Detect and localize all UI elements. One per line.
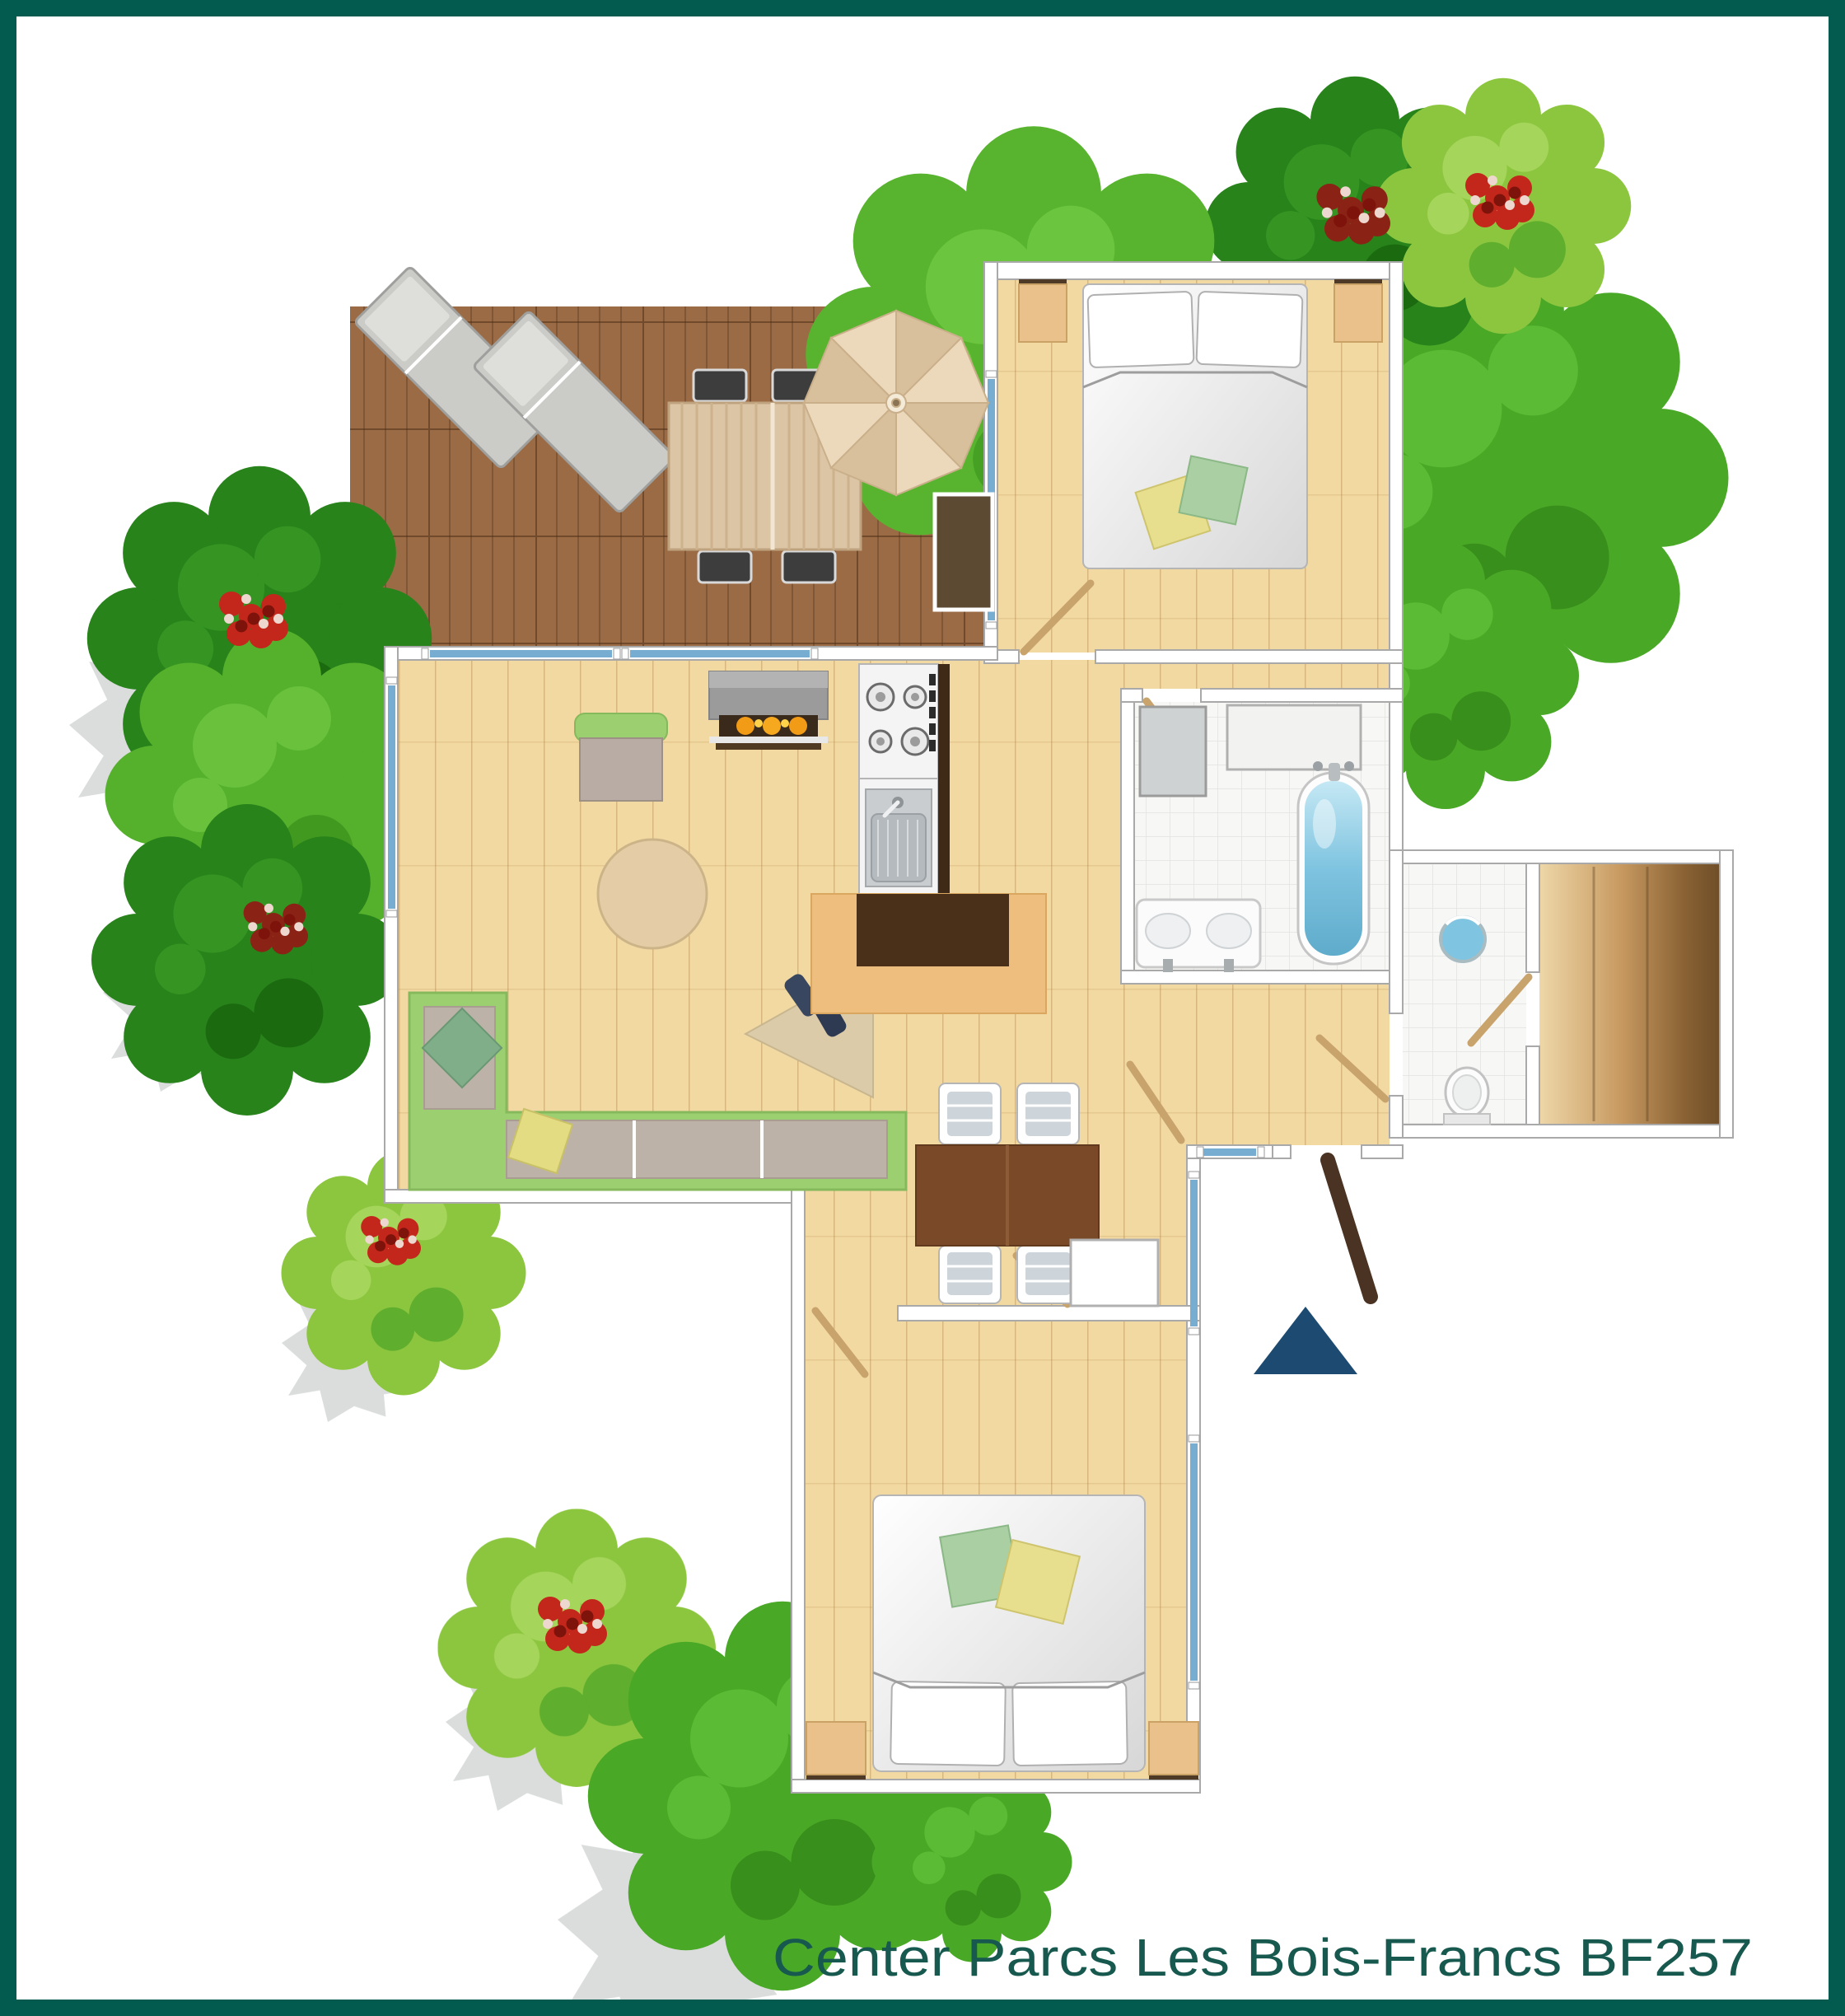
nightstand	[1334, 284, 1382, 342]
kitchen-counter	[811, 894, 1046, 1013]
armchair	[575, 713, 667, 801]
bed-cushion-green	[1179, 456, 1247, 524]
closet	[1071, 1240, 1158, 1306]
double-bed	[1083, 284, 1307, 568]
wardrobe	[1227, 705, 1361, 769]
double-bed-2	[873, 1495, 1145, 1771]
nightstand	[1149, 1722, 1198, 1775]
double-washbasin	[1137, 900, 1260, 972]
washing-machine	[1140, 707, 1206, 796]
floor-plan-poster: Center Parcs Les Bois-Francs BF257	[0, 0, 1845, 2016]
deck-storage-box	[935, 494, 993, 610]
caption: Center Parcs Les Bois-Francs BF257	[773, 1928, 1753, 1987]
nightstand	[806, 1722, 866, 1775]
nightstand	[1019, 284, 1067, 342]
toilet	[1444, 1068, 1490, 1125]
floor-plan-canvas: Center Parcs Les Bois-Francs BF257	[0, 0, 1845, 2016]
sauna-floor	[1539, 863, 1720, 1125]
parasol	[804, 311, 988, 495]
bathtub	[1298, 761, 1369, 964]
tree-left-lower	[91, 804, 403, 1116]
fireplace	[709, 671, 828, 750]
kitchen-sink	[866, 789, 932, 886]
round-rug	[598, 840, 707, 948]
